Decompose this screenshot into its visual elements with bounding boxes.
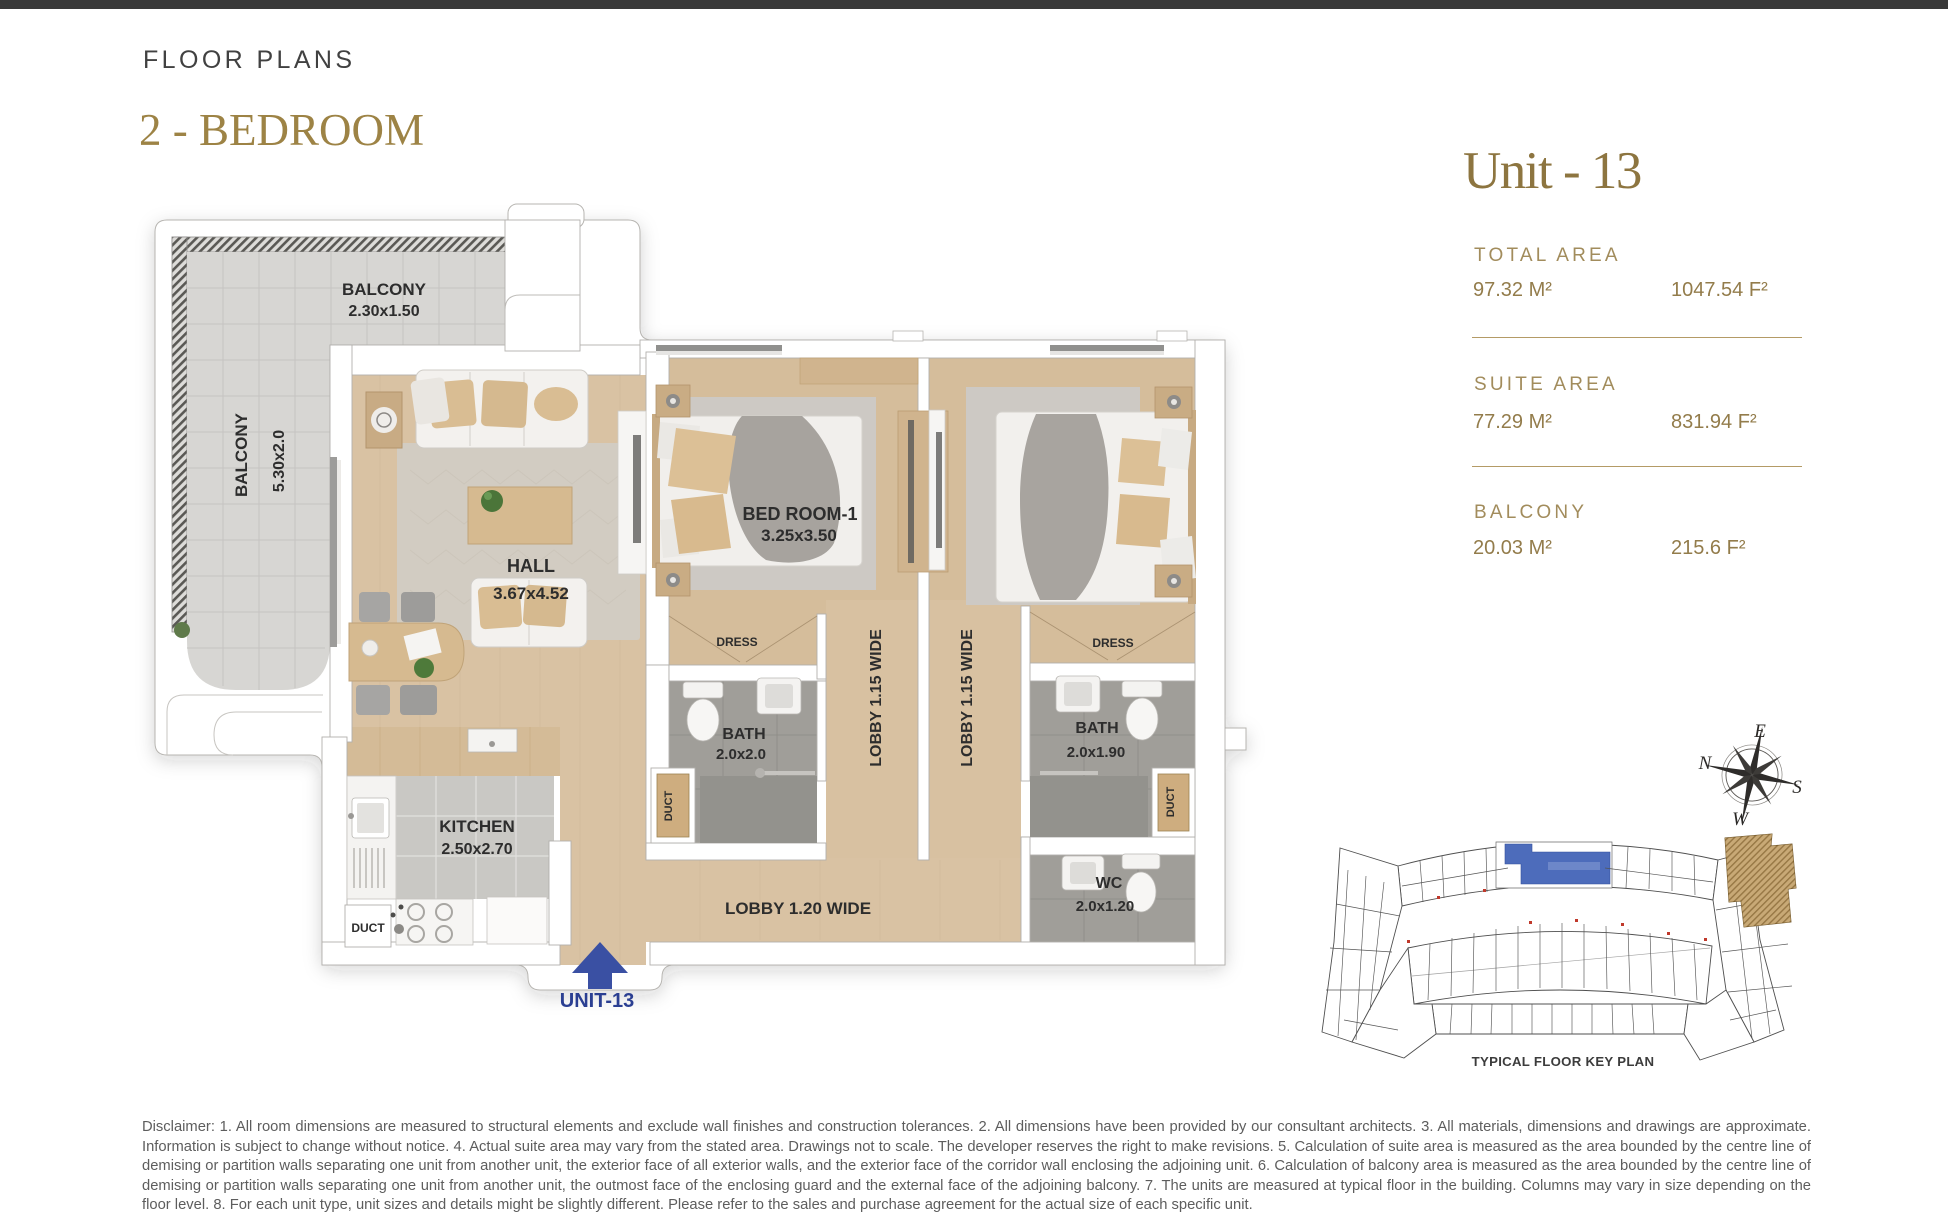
svg-text:5.30x2.0: 5.30x2.0 bbox=[271, 430, 288, 492]
svg-text:S: S bbox=[1792, 777, 1802, 798]
svg-text:3.67x4.52: 3.67x4.52 bbox=[493, 584, 569, 603]
svg-text:LOBBY 1.15 WIDE: LOBBY 1.15 WIDE bbox=[868, 629, 885, 767]
svg-text:DRESS: DRESS bbox=[1092, 636, 1133, 650]
svg-text:2.0x1.20: 2.0x1.20 bbox=[1076, 898, 1134, 915]
svg-text:BATH: BATH bbox=[1075, 720, 1118, 737]
svg-text:2.50x2.70: 2.50x2.70 bbox=[441, 841, 512, 858]
svg-text:BALCONY: BALCONY bbox=[342, 280, 427, 299]
svg-text:DUCT: DUCT bbox=[351, 921, 385, 935]
svg-text:LOBBY 1.15 WIDE: LOBBY 1.15 WIDE bbox=[959, 629, 976, 767]
svg-text:HALL: HALL bbox=[507, 556, 555, 576]
svg-text:LOBBY 1.20 WIDE: LOBBY 1.20 WIDE bbox=[725, 899, 871, 918]
svg-text:DUCT: DUCT bbox=[663, 790, 675, 821]
svg-text:E: E bbox=[1753, 721, 1766, 742]
svg-text:DUCT: DUCT bbox=[1165, 786, 1177, 817]
svg-text:UNIT-13: UNIT-13 bbox=[560, 990, 634, 1012]
svg-text:KITCHEN: KITCHEN bbox=[439, 817, 515, 836]
svg-text:N: N bbox=[1698, 753, 1713, 774]
svg-text:TYPICAL FLOOR KEY PLAN: TYPICAL FLOOR KEY PLAN bbox=[1472, 1054, 1655, 1069]
svg-text:BALCONY: BALCONY bbox=[232, 412, 251, 497]
svg-text:2.0x2.0: 2.0x2.0 bbox=[716, 746, 766, 763]
svg-text:2.30x1.50: 2.30x1.50 bbox=[348, 303, 419, 320]
svg-text:W: W bbox=[1732, 809, 1750, 830]
svg-text:WC: WC bbox=[1096, 875, 1123, 892]
svg-text:DRESS: DRESS bbox=[716, 635, 757, 649]
svg-text:BED ROOM-1: BED ROOM-1 bbox=[742, 504, 857, 524]
svg-text:BATH: BATH bbox=[722, 726, 765, 743]
svg-text:3.25x3.50: 3.25x3.50 bbox=[761, 526, 837, 545]
svg-text:2.0x1.90: 2.0x1.90 bbox=[1067, 744, 1125, 761]
